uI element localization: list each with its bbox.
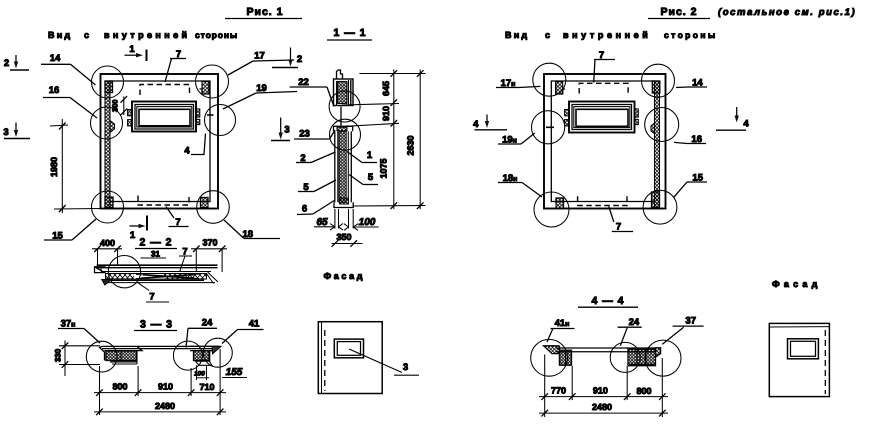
svg-text:Рис. 2: Рис. 2 bbox=[661, 6, 698, 18]
svg-text:3: 3 bbox=[3, 127, 8, 138]
svg-text:370: 370 bbox=[202, 238, 217, 248]
svg-text:17: 17 bbox=[254, 51, 265, 62]
svg-text:24: 24 bbox=[629, 317, 640, 328]
svg-text:1 — 1: 1 — 1 bbox=[333, 27, 366, 39]
svg-text:4: 4 bbox=[743, 119, 749, 130]
svg-text:910: 910 bbox=[158, 382, 173, 392]
svg-text:4: 4 bbox=[473, 119, 479, 130]
svg-text:41: 41 bbox=[249, 319, 260, 330]
svg-text:14: 14 bbox=[50, 53, 61, 64]
svg-text:3: 3 bbox=[403, 362, 408, 373]
svg-text:Рис. 1: Рис. 1 bbox=[247, 6, 284, 18]
svg-text:910: 910 bbox=[381, 106, 391, 121]
svg-text:31: 31 bbox=[151, 250, 160, 259]
svg-text:300: 300 bbox=[111, 100, 120, 113]
svg-text:4 — 4: 4 — 4 bbox=[591, 295, 624, 307]
svg-text:3: 3 bbox=[284, 125, 289, 136]
svg-text:37: 37 bbox=[685, 316, 696, 327]
svg-text:1980: 1980 bbox=[49, 157, 59, 177]
svg-text:Видсвнутреннейстороны: Видсвнутреннейстороны bbox=[505, 30, 718, 40]
svg-text:2630: 2630 bbox=[406, 135, 416, 155]
svg-text:5: 5 bbox=[368, 172, 374, 183]
svg-text:1: 1 bbox=[129, 44, 135, 55]
svg-text:Видсвнутреннейстороны: Видсвнутреннейстороны bbox=[48, 30, 238, 40]
svg-text:2480: 2480 bbox=[155, 401, 175, 411]
svg-text:710: 710 bbox=[199, 382, 214, 392]
svg-text:6: 6 bbox=[302, 204, 307, 215]
svg-text:100: 100 bbox=[194, 371, 205, 378]
svg-text:23: 23 bbox=[299, 129, 310, 140]
svg-text:400: 400 bbox=[100, 238, 115, 248]
svg-text:4: 4 bbox=[184, 146, 190, 157]
svg-text:24: 24 bbox=[202, 318, 213, 329]
svg-text:910: 910 bbox=[593, 386, 608, 396]
svg-text:Фасад: Фасад bbox=[324, 271, 366, 281]
svg-text:3 — 3: 3 — 3 bbox=[140, 319, 173, 331]
svg-text:2480: 2480 bbox=[592, 402, 612, 412]
svg-text:2 — 2: 2 — 2 bbox=[139, 237, 172, 249]
svg-text:155: 155 bbox=[226, 367, 243, 378]
svg-text:7: 7 bbox=[149, 292, 154, 303]
svg-text:350: 350 bbox=[336, 232, 351, 242]
svg-text:770: 770 bbox=[551, 386, 566, 396]
svg-text:16: 16 bbox=[49, 85, 60, 96]
svg-text:100: 100 bbox=[359, 217, 376, 228]
svg-text:(остальное см. рис.1): (остальное см. рис.1) bbox=[718, 7, 856, 18]
svg-text:330: 330 bbox=[54, 348, 63, 362]
svg-text:Фасад: Фасад bbox=[772, 279, 822, 289]
svg-text:800: 800 bbox=[112, 382, 127, 392]
svg-text:1075: 1075 bbox=[379, 158, 389, 178]
svg-text:1: 1 bbox=[130, 230, 136, 241]
svg-text:2: 2 bbox=[297, 54, 302, 65]
svg-text:41н: 41н bbox=[555, 318, 570, 329]
svg-text:1: 1 bbox=[367, 150, 373, 161]
svg-text:645: 645 bbox=[381, 81, 391, 96]
svg-text:2: 2 bbox=[4, 58, 9, 69]
svg-text:800: 800 bbox=[636, 386, 651, 396]
svg-text:65: 65 bbox=[316, 217, 328, 228]
